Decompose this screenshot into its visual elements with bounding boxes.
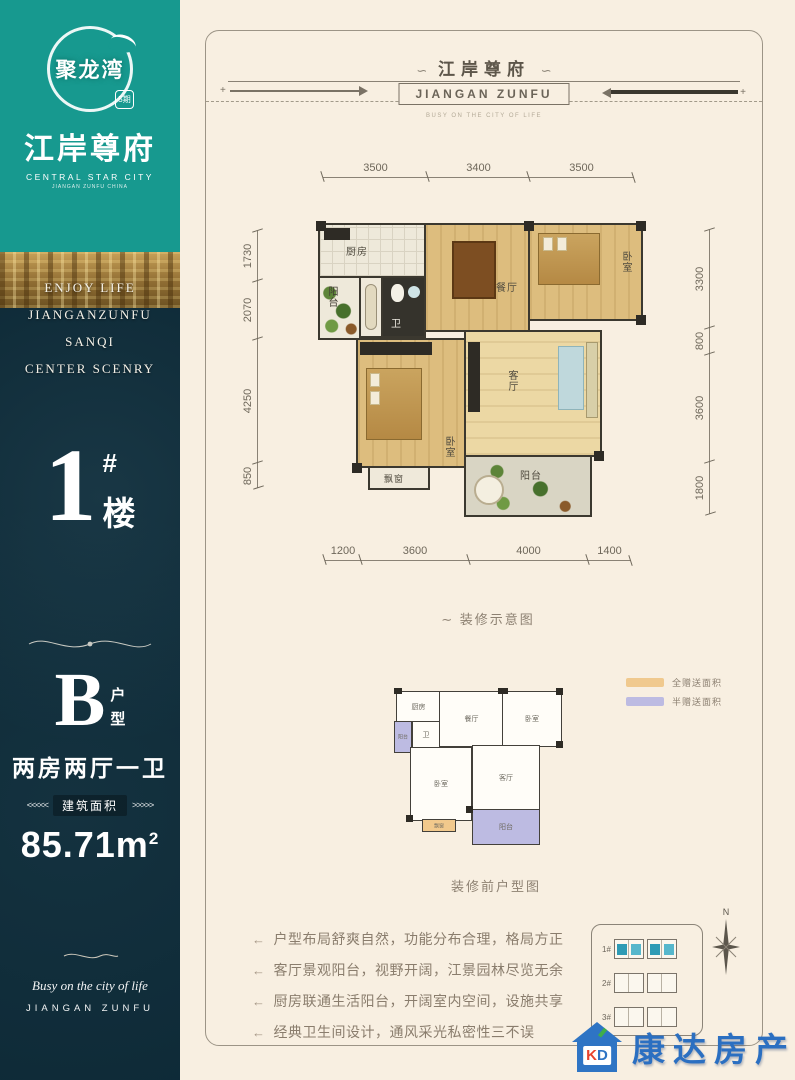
arrow-marker-icon: ← bbox=[252, 994, 266, 1009]
room-balcony-bottom-half-gift: 阳台 bbox=[472, 809, 540, 845]
header-arrow-left: + bbox=[230, 90, 360, 92]
room-dining: 餐厅 bbox=[424, 223, 530, 332]
room-bedroom-left: 卧室 bbox=[356, 338, 466, 468]
room-bedroom-left: 卧室 bbox=[410, 747, 472, 821]
building-unit bbox=[647, 973, 677, 993]
dragon-logo-icon: 聚龙湾 5期 bbox=[47, 26, 133, 112]
slogan-block: ENJOY LIFE JIANGANZUNFU SANQI CENTER SCE… bbox=[0, 280, 180, 388]
dim-value: 850 bbox=[242, 466, 254, 484]
room-living: 客厅 bbox=[472, 745, 540, 811]
feature-item: ←户型布局舒爽自然，功能分布合理，格局方正 bbox=[252, 929, 602, 949]
legend-swatch-half bbox=[626, 697, 664, 706]
sofa-icon bbox=[586, 342, 598, 418]
title-ornament-right: ∽ bbox=[541, 63, 552, 78]
sidebar-footer: Busy on the city of life JIANGAN ZUNFU bbox=[0, 948, 180, 1014]
dimension-top: 3500 3400 3500 bbox=[323, 162, 634, 178]
decorated-floorplan: 厨房 阳台 卫 餐厅 卧室 bbox=[318, 223, 658, 525]
dim-value: 800 bbox=[694, 332, 706, 350]
feature-item: ←经典卫生间设计，通风采光私密性三不误 bbox=[252, 1022, 602, 1042]
building-row-2: 2# bbox=[602, 973, 680, 993]
dim-value: 3500 bbox=[323, 162, 428, 174]
legend-row-half: 半赠送面积 bbox=[626, 695, 722, 708]
bathtub-icon bbox=[365, 284, 377, 330]
caption-marker: ∼ bbox=[441, 612, 460, 627]
legend-swatch-full bbox=[626, 678, 664, 687]
room-bedroom-right: 卧室 bbox=[528, 223, 643, 321]
building-suffix: 楼 bbox=[103, 487, 136, 535]
header-tagline: BUSY ON THE CITY OF LIFE bbox=[206, 113, 762, 119]
dim-value: 3500 bbox=[529, 162, 634, 174]
flourish-divider bbox=[0, 636, 180, 657]
room-bath: 卫 bbox=[412, 721, 440, 749]
brand-title: 江岸尊府 bbox=[0, 124, 180, 168]
slogan-line: ENJOY LIFE bbox=[0, 280, 180, 296]
logo-name: 聚龙湾 bbox=[30, 54, 150, 84]
unit-block: B 户 型 两房两厅一卫 <<<<< 建筑面积 >>>>> 85.71m2 bbox=[0, 668, 180, 866]
building-unit-highlighted bbox=[647, 939, 677, 959]
room-bath: 卫 bbox=[381, 276, 426, 338]
dim-value: 1200 bbox=[325, 545, 361, 557]
compass-star-icon bbox=[711, 918, 741, 976]
dining-table-icon bbox=[452, 241, 496, 299]
bay-window-full-gift: 飘窗 bbox=[422, 819, 456, 832]
dim-value: 3300 bbox=[694, 267, 706, 291]
sidebar: 聚龙湾 5期 江岸尊府 CENTRAL STAR CITY JIANGAN ZU… bbox=[0, 0, 180, 1080]
area-superscript: 2 bbox=[149, 829, 159, 848]
room-kitchen: 厨房 bbox=[396, 691, 441, 723]
slogan-line: SANQI bbox=[0, 334, 180, 350]
area-label: 建筑面积 bbox=[53, 795, 127, 816]
compass-north-label: N bbox=[711, 907, 741, 917]
tv-cabinet-icon bbox=[468, 342, 480, 412]
bed-icon bbox=[538, 233, 600, 285]
arrow-marker-icon: ← bbox=[252, 1025, 266, 1040]
footer-script: Busy on the city of life bbox=[0, 978, 180, 994]
area-arrows-right: >>>>> bbox=[132, 800, 153, 810]
building-unit bbox=[614, 973, 644, 993]
feature-item: ←厨房联通生活阳台，开阔室内空间，设施共享 bbox=[252, 991, 602, 1011]
flourish-small bbox=[60, 951, 120, 961]
dim-value: 3400 bbox=[428, 162, 529, 174]
dim-value: 4250 bbox=[242, 389, 254, 413]
slogan-line: JIANGANZUNFU bbox=[0, 307, 180, 323]
header-arrow-right: + bbox=[608, 90, 738, 94]
header-subtitle-box: JIANGAN ZUNFU bbox=[399, 83, 570, 105]
agency-name: 康达房产 bbox=[632, 1023, 795, 1071]
room-balcony-left: 阳台 bbox=[318, 276, 361, 340]
unit-description: 两房两厅一卫 bbox=[0, 749, 180, 783]
card-title: ∽ 江岸尊府 ∽ bbox=[206, 55, 762, 80]
dimension-left: 1730 2070 4250 850 bbox=[242, 231, 258, 488]
main-panel: ∽ 江岸尊府 ∽ + + JIANGAN ZUNFU BUSY ON THE C… bbox=[180, 0, 795, 1080]
unit-letter: B bbox=[55, 668, 106, 733]
arrow-marker-icon: ← bbox=[252, 932, 266, 947]
feature-list: ←户型布局舒爽自然，功能分布合理，格局方正 ←客厅景观阳台，视野开阔，江景园林尽… bbox=[252, 929, 602, 1053]
site-plan: 1# 2# 3# bbox=[591, 924, 703, 1036]
unit-type-char: 户 bbox=[110, 684, 125, 705]
header-rule bbox=[228, 81, 740, 82]
decorated-plan-caption: ∼ 装修示意图 bbox=[318, 609, 658, 628]
brand-title-en: CENTRAL STAR CITY bbox=[0, 172, 180, 182]
logo-phase-badge: 5期 bbox=[115, 90, 134, 109]
logo-letter-k: K bbox=[586, 1047, 597, 1064]
brand-subtitle: JIANGAN ZUNFU CHINA bbox=[0, 184, 180, 190]
building-number: 1 # 楼 bbox=[0, 438, 180, 535]
bathtub-strip bbox=[359, 276, 383, 338]
rattan-chair-icon bbox=[474, 475, 504, 505]
title-ornament-left: ∽ bbox=[416, 63, 427, 78]
slogan-line: CENTER SCENRY bbox=[0, 361, 180, 377]
building-hash: # bbox=[103, 448, 136, 479]
room-balcony-bottom: 阳台 bbox=[464, 455, 592, 517]
room-kitchen: 厨房 bbox=[318, 223, 426, 278]
dim-value: 3600 bbox=[694, 396, 706, 420]
rug-icon bbox=[558, 346, 584, 410]
pencil-icon bbox=[598, 1024, 610, 1037]
content-card: ∽ 江岸尊府 ∽ + + JIANGAN ZUNFU BUSY ON THE C… bbox=[205, 30, 763, 1046]
dim-value: 1400 bbox=[588, 545, 631, 557]
dim-value: 3600 bbox=[361, 545, 469, 557]
dimension-right: 3300 800 3600 1800 bbox=[694, 230, 710, 514]
building-number-digit: 1 bbox=[45, 438, 97, 535]
building-unit-highlighted bbox=[614, 939, 644, 959]
stove-icon bbox=[324, 228, 350, 240]
bay-window: 飘窗 bbox=[368, 466, 430, 490]
room-dining: 餐厅 bbox=[439, 691, 504, 747]
house-logo-icon: KD bbox=[572, 1022, 622, 1072]
unit-type-char: 型 bbox=[110, 708, 125, 729]
logo-letter-d: D bbox=[597, 1047, 608, 1064]
dim-value: 2070 bbox=[242, 298, 254, 322]
original-plan-caption: 装修前户型图 bbox=[326, 876, 666, 895]
dim-value: 1800 bbox=[694, 476, 706, 500]
room-living: 客厅 bbox=[464, 330, 602, 457]
dim-value: 1730 bbox=[242, 244, 254, 268]
area-value: 85.71m2 bbox=[0, 824, 180, 866]
arrow-marker-icon: ← bbox=[252, 963, 266, 978]
dimension-bottom: 1200 3600 4000 1400 bbox=[325, 545, 631, 561]
footer-project-name: JIANGAN ZUNFU bbox=[0, 1003, 180, 1014]
area-legend: 全赠送面积 半赠送面积 bbox=[626, 676, 722, 714]
area-arrows-left: <<<<< bbox=[27, 800, 48, 810]
agency-logo: KD 康达房产 bbox=[572, 1022, 795, 1072]
building-row-1: 1# bbox=[602, 939, 680, 959]
bed-icon bbox=[366, 368, 422, 440]
sink-icon bbox=[408, 286, 420, 298]
feature-item: ←客厅景观阳台，视野开阔，江景园林尽览无余 bbox=[252, 960, 602, 980]
toilet-icon bbox=[391, 284, 404, 302]
wardrobe-icon bbox=[360, 342, 432, 355]
dim-value: 4000 bbox=[469, 545, 588, 557]
room-bedroom-right: 卧室 bbox=[502, 691, 562, 747]
compass: N bbox=[711, 907, 741, 981]
legend-row-full: 全赠送面积 bbox=[626, 676, 722, 689]
original-floorplan: 厨房 餐厅 卧室 阳台 卫 卧室 客厅 飘窗 阳台 bbox=[394, 688, 572, 846]
sidebar-header: 聚龙湾 5期 江岸尊府 CENTRAL STAR CITY JIANGAN ZU… bbox=[0, 0, 180, 252]
